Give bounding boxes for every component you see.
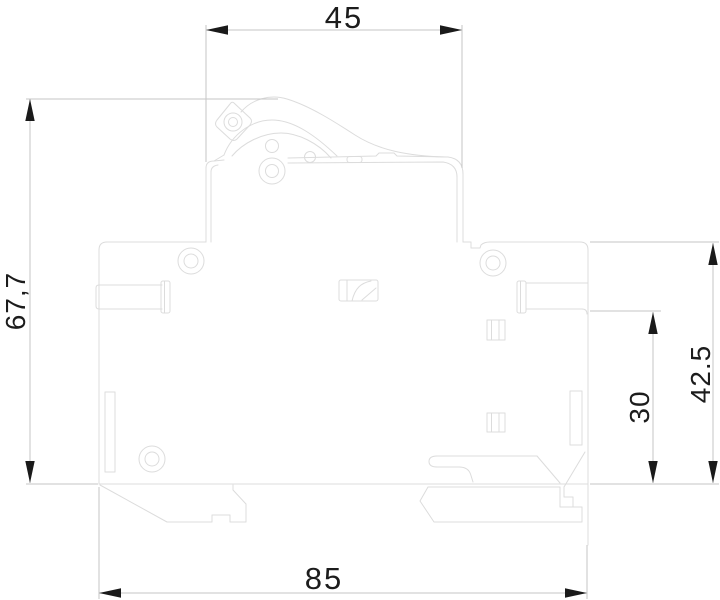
body-top-step-notch	[463, 242, 490, 248]
toggle-knob	[216, 102, 252, 140]
arrow-down-icon	[708, 461, 717, 483]
pivot-inner-circle	[266, 165, 279, 178]
pivot-outer-circle	[259, 158, 285, 184]
rivet-top-left-outer	[178, 248, 204, 274]
dimension-mount-height: 30	[590, 311, 661, 483]
arrow-right-icon	[440, 25, 462, 35]
arrow-down-icon	[25, 461, 34, 483]
dimension-label-overall-height: 67,7	[0, 272, 31, 331]
mount-wedge-left	[100, 485, 246, 522]
toggle-mechanism	[216, 97, 446, 184]
link-circle	[266, 140, 279, 153]
dimension-overall-height: 67,7	[0, 99, 278, 484]
toggle-sweep-arc	[241, 97, 445, 157]
din-rail-mount	[100, 452, 585, 522]
dimension-top-width: 45	[206, 0, 462, 168]
rivet-top-right-inner	[486, 256, 500, 270]
rail-clip-spring	[429, 456, 537, 482]
rail-clip-diagonal	[564, 452, 585, 487]
arrow-down-icon	[648, 461, 657, 483]
left-terminal	[96, 281, 170, 313]
arrow-left-icon	[99, 588, 121, 598]
case-details	[105, 280, 582, 472]
right-terminal-bottom-edge	[526, 309, 587, 314]
rivet-top-left-inner	[184, 254, 198, 268]
technical-drawing-canvas: 45 67,7 85 30 42.5	[0, 0, 720, 600]
drawing-page: 45 67,7 85 30 42.5	[0, 0, 720, 600]
side-groove-left	[105, 392, 115, 472]
dimension-overall-width: 85	[99, 487, 587, 599]
right-terminal	[517, 281, 588, 314]
dimension-label-top-width: 45	[325, 0, 363, 35]
rivet-bottom-left-outer	[139, 446, 165, 472]
housing-top-surface-inner	[288, 162, 457, 242]
label-plate-diagonal	[362, 288, 376, 300]
arrow-up-icon	[25, 99, 34, 121]
rail-clip-step	[564, 487, 573, 507]
center-label-plate	[339, 280, 378, 301]
dimension-label-overall-width: 85	[305, 561, 343, 596]
knob-inner-circle	[229, 118, 238, 127]
arrow-left-icon	[206, 25, 228, 35]
housing-top-surface-outer	[288, 153, 463, 242]
breaker-outline	[96, 97, 588, 545]
side-groove-right	[570, 391, 582, 445]
vent-slot-lower	[487, 413, 505, 432]
arrow-right-icon	[565, 588, 587, 598]
housing-left-wall-outer	[206, 160, 224, 242]
rivet-top-right-outer	[480, 250, 506, 276]
breaker-body	[99, 242, 588, 545]
rail-clip-spring-diagonal	[537, 456, 560, 483]
vent-slot-upper	[487, 320, 505, 340]
housing-left-wall-inner	[211, 165, 218, 242]
left-terminal-body	[96, 285, 162, 309]
left-terminal-cap	[161, 281, 170, 313]
right-terminal-cap	[517, 281, 526, 313]
label-plate-curve	[352, 281, 371, 301]
case-rivets	[139, 248, 506, 472]
arrow-up-icon	[648, 312, 657, 334]
surface-detent	[347, 157, 362, 163]
toggle-fan-inner-arc	[232, 133, 331, 158]
dimension-body-height: 42.5	[590, 242, 719, 484]
dimension-label-body-height: 42.5	[685, 345, 716, 404]
rail-clip-body	[420, 487, 582, 522]
dimension-label-mount-height: 30	[624, 390, 655, 423]
rivet-bottom-left-inner	[145, 452, 159, 466]
knob-outer-circle	[224, 113, 242, 131]
arrow-up-icon	[708, 243, 717, 265]
toggle-housing	[206, 153, 463, 242]
